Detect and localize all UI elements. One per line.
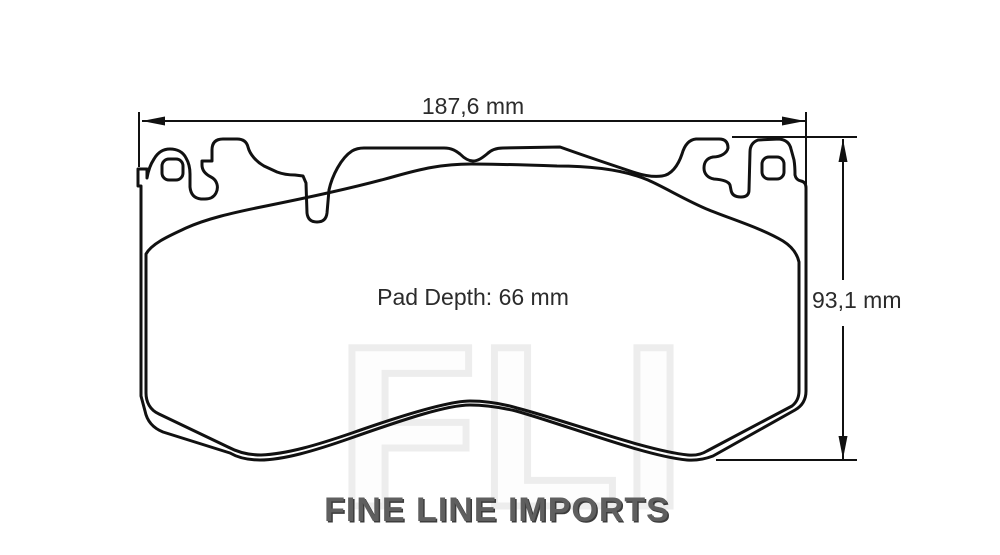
pad-depth-label: Pad Depth: 66 mm: [377, 284, 569, 311]
brake-pad-technical-drawing: FLI 187,6 mm 93,1 mm Pad Depth: 66: [0, 0, 1000, 538]
left-ear-hole: [162, 159, 183, 180]
height-dim-arrow-down-icon: [839, 436, 848, 459]
drawing-canvas: [0, 0, 1000, 538]
height-dimension-label: 93,1 mm: [812, 287, 901, 314]
fine-line-imports-logo: FINE LINE IMPORTS: [324, 491, 670, 530]
width-dim-arrow-left-icon: [142, 117, 165, 126]
right-ear-hole: [762, 157, 784, 179]
height-dim-arrow-up-icon: [839, 139, 848, 162]
width-dim-arrow-right-icon: [782, 117, 805, 126]
width-dimension-label: 187,6 mm: [422, 93, 524, 120]
